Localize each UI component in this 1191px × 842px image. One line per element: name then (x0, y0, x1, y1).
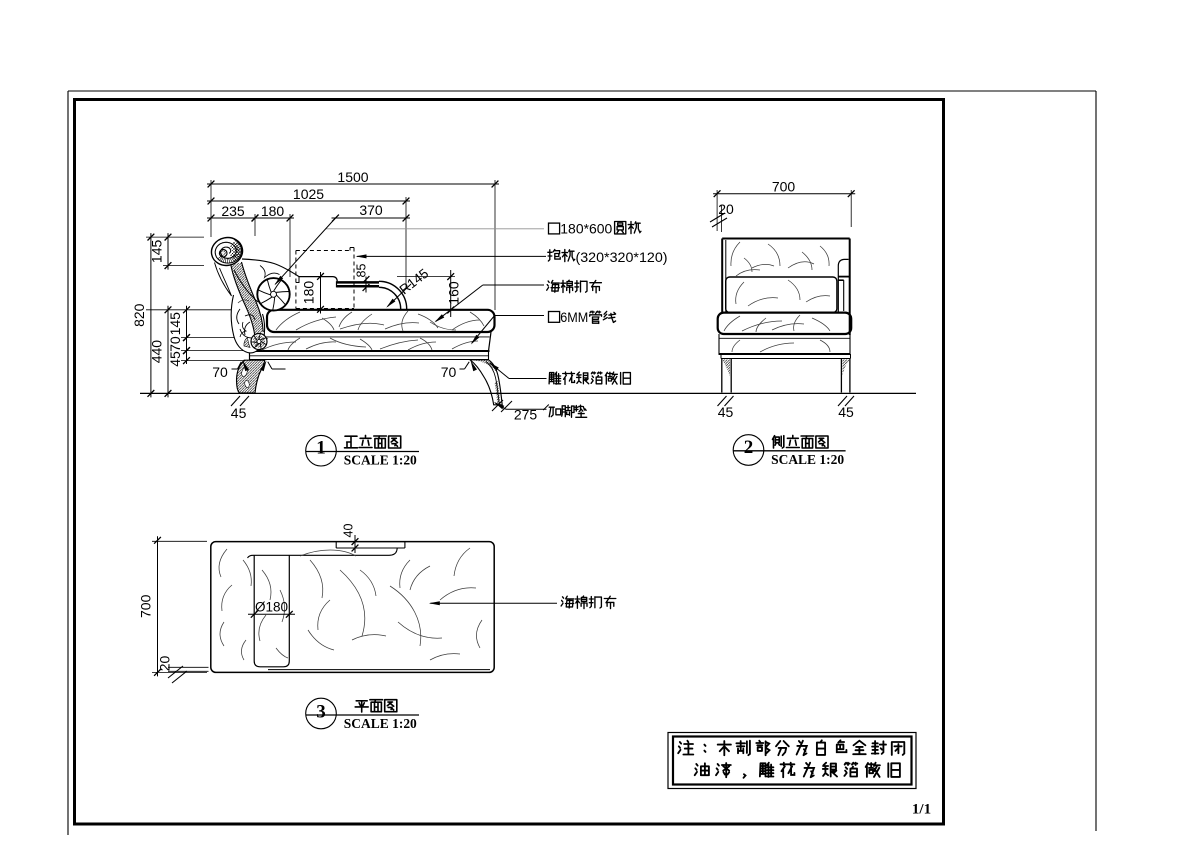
svg-text:1025: 1025 (293, 186, 324, 202)
svg-text:700: 700 (772, 179, 796, 195)
svg-text:70: 70 (441, 364, 457, 380)
svg-text:SCALE 1:20: SCALE 1:20 (344, 453, 417, 468)
svg-text:45: 45 (231, 405, 247, 421)
svg-text:40: 40 (342, 524, 356, 538)
svg-text:440: 440 (149, 340, 165, 364)
svg-text:6MM: 6MM (560, 309, 588, 325)
svg-text:45: 45 (838, 404, 854, 420)
svg-text:1500: 1500 (337, 169, 368, 185)
svg-text:370: 370 (359, 202, 383, 218)
svg-text:180*600: 180*600 (560, 221, 612, 237)
svg-text:20: 20 (157, 656, 173, 672)
svg-text:180: 180 (301, 281, 317, 305)
svg-text:20: 20 (718, 201, 734, 217)
svg-text:1/1: 1/1 (912, 802, 931, 818)
svg-text:3: 3 (316, 702, 326, 723)
svg-text:145: 145 (167, 312, 183, 336)
svg-text:180: 180 (261, 203, 285, 219)
svg-text:70: 70 (212, 364, 228, 380)
svg-text:45: 45 (718, 404, 734, 420)
svg-text:2: 2 (744, 437, 754, 458)
svg-text:(320*320*120): (320*320*120) (576, 249, 668, 265)
svg-text:SCALE 1:20: SCALE 1:20 (771, 452, 844, 467)
svg-text:45: 45 (167, 351, 183, 367)
svg-text:Ø180: Ø180 (255, 600, 288, 615)
svg-text:820: 820 (131, 303, 147, 327)
svg-text:1: 1 (316, 438, 326, 459)
svg-text:145: 145 (149, 240, 165, 264)
svg-text:85: 85 (355, 264, 369, 278)
svg-text:160: 160 (446, 281, 462, 305)
svg-text:SCALE 1:20: SCALE 1:20 (344, 716, 417, 731)
svg-text:70: 70 (167, 336, 183, 352)
svg-text:700: 700 (138, 594, 154, 618)
svg-text:235: 235 (221, 203, 245, 219)
